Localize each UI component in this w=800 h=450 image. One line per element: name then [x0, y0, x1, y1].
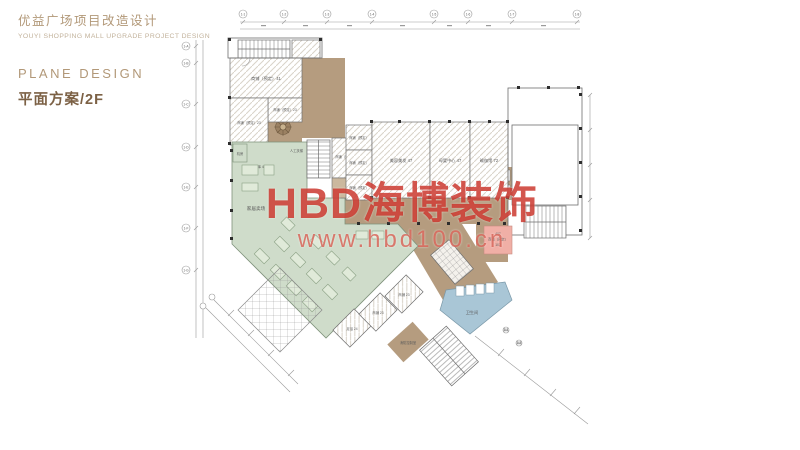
grid-label: 1-7	[510, 12, 515, 16]
restroom-zone: 卫生间	[440, 282, 512, 334]
grid-label: 1-6	[466, 12, 471, 16]
grid-label: 1-8	[575, 12, 580, 16]
dimension-line-left: 1-A 1-B 1-C 1-D 1-E 1-F 1-G	[182, 40, 203, 338]
grid-label: 1-5	[432, 12, 437, 16]
dimension-line-bottom-right: 2-1 2-2	[475, 327, 588, 424]
rooms-top-right: 商铺（预定） 商铺（预定） 商铺（预定） 美容美发 47 母婴中心 47 瑜伽馆…	[346, 122, 508, 200]
room-label-escalator: 人工扶梯	[290, 148, 304, 153]
grid-label: 1-A	[184, 44, 190, 48]
grid-label: 1-2	[282, 12, 287, 16]
dimension-line-top: 1-1 1-2 1-3 1-4 1-5 1-6 1-7 1-8	[239, 10, 581, 29]
grid-label: 1-1	[241, 12, 246, 16]
room-label-wc: 卫生间	[466, 309, 479, 316]
room-label-d2: 商铺 23	[372, 310, 383, 315]
room-label-small1: 商铺（预定）	[349, 135, 369, 140]
grid-label: 2-1	[504, 328, 509, 332]
room-label-shop-c: 商铺（预定）23	[237, 120, 261, 125]
room-label-small2: 商铺（预定）	[349, 160, 369, 165]
floor-plan-drawing: 1-1 1-2 1-3 1-4 1-5 1-6 1-7 1-8 1-A 1-B …	[0, 0, 800, 450]
room-label-pink-area: 103	[495, 243, 501, 247]
grid-label: 1-4	[370, 12, 375, 16]
room-label-furniture: 家居卖场	[247, 205, 266, 212]
grid-label: 1-G	[183, 268, 189, 272]
room-label-shop-b: 商铺（预定）23	[273, 107, 297, 112]
room-label-maternity: 母婴中心 47	[439, 157, 462, 164]
grid-label: 1-B	[184, 61, 189, 65]
fire-control-room: 消防控制室	[387, 322, 428, 363]
grid-label: 1-C	[183, 102, 189, 106]
room-label-d3: 商铺 23	[398, 292, 409, 297]
grid-label: 1-D	[183, 145, 189, 149]
room-label-beauty: 美容美发 47	[390, 157, 413, 164]
room-label-fire: 消防控制室	[400, 340, 417, 345]
room-label-yoga: 瑜伽馆 72	[480, 157, 499, 164]
room-label-machine: 机房	[237, 151, 244, 156]
grid-label: 2-2	[517, 341, 522, 345]
grid-label: 1-E	[184, 185, 189, 189]
grid-label: 1-3	[325, 12, 330, 16]
room-label-pink-no: 407	[495, 232, 501, 236]
grid-label: 1-F	[184, 226, 189, 230]
dimension-line-right	[588, 93, 592, 240]
room-label-pink-name: 商铺（预定）	[488, 237, 508, 242]
stair-bottom	[420, 326, 479, 386]
room-label-small3: 商铺（预定）	[349, 185, 369, 190]
room-label-shop-a: 商铺（预定）41	[251, 75, 281, 82]
room-label-d1: 足浴 24	[346, 326, 357, 331]
